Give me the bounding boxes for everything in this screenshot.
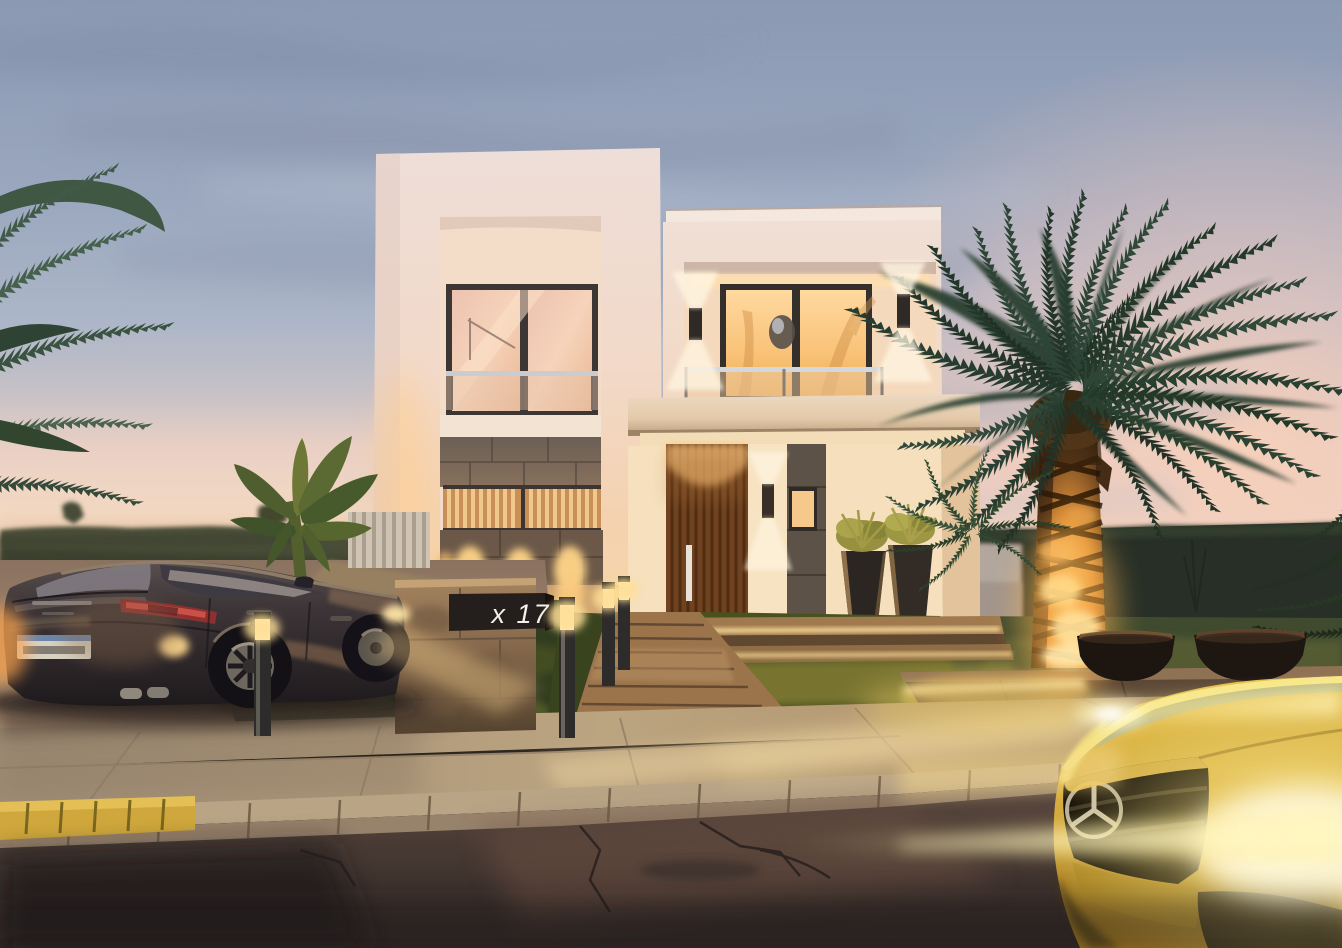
svg-text:x 17: x 17 bbox=[489, 599, 550, 629]
